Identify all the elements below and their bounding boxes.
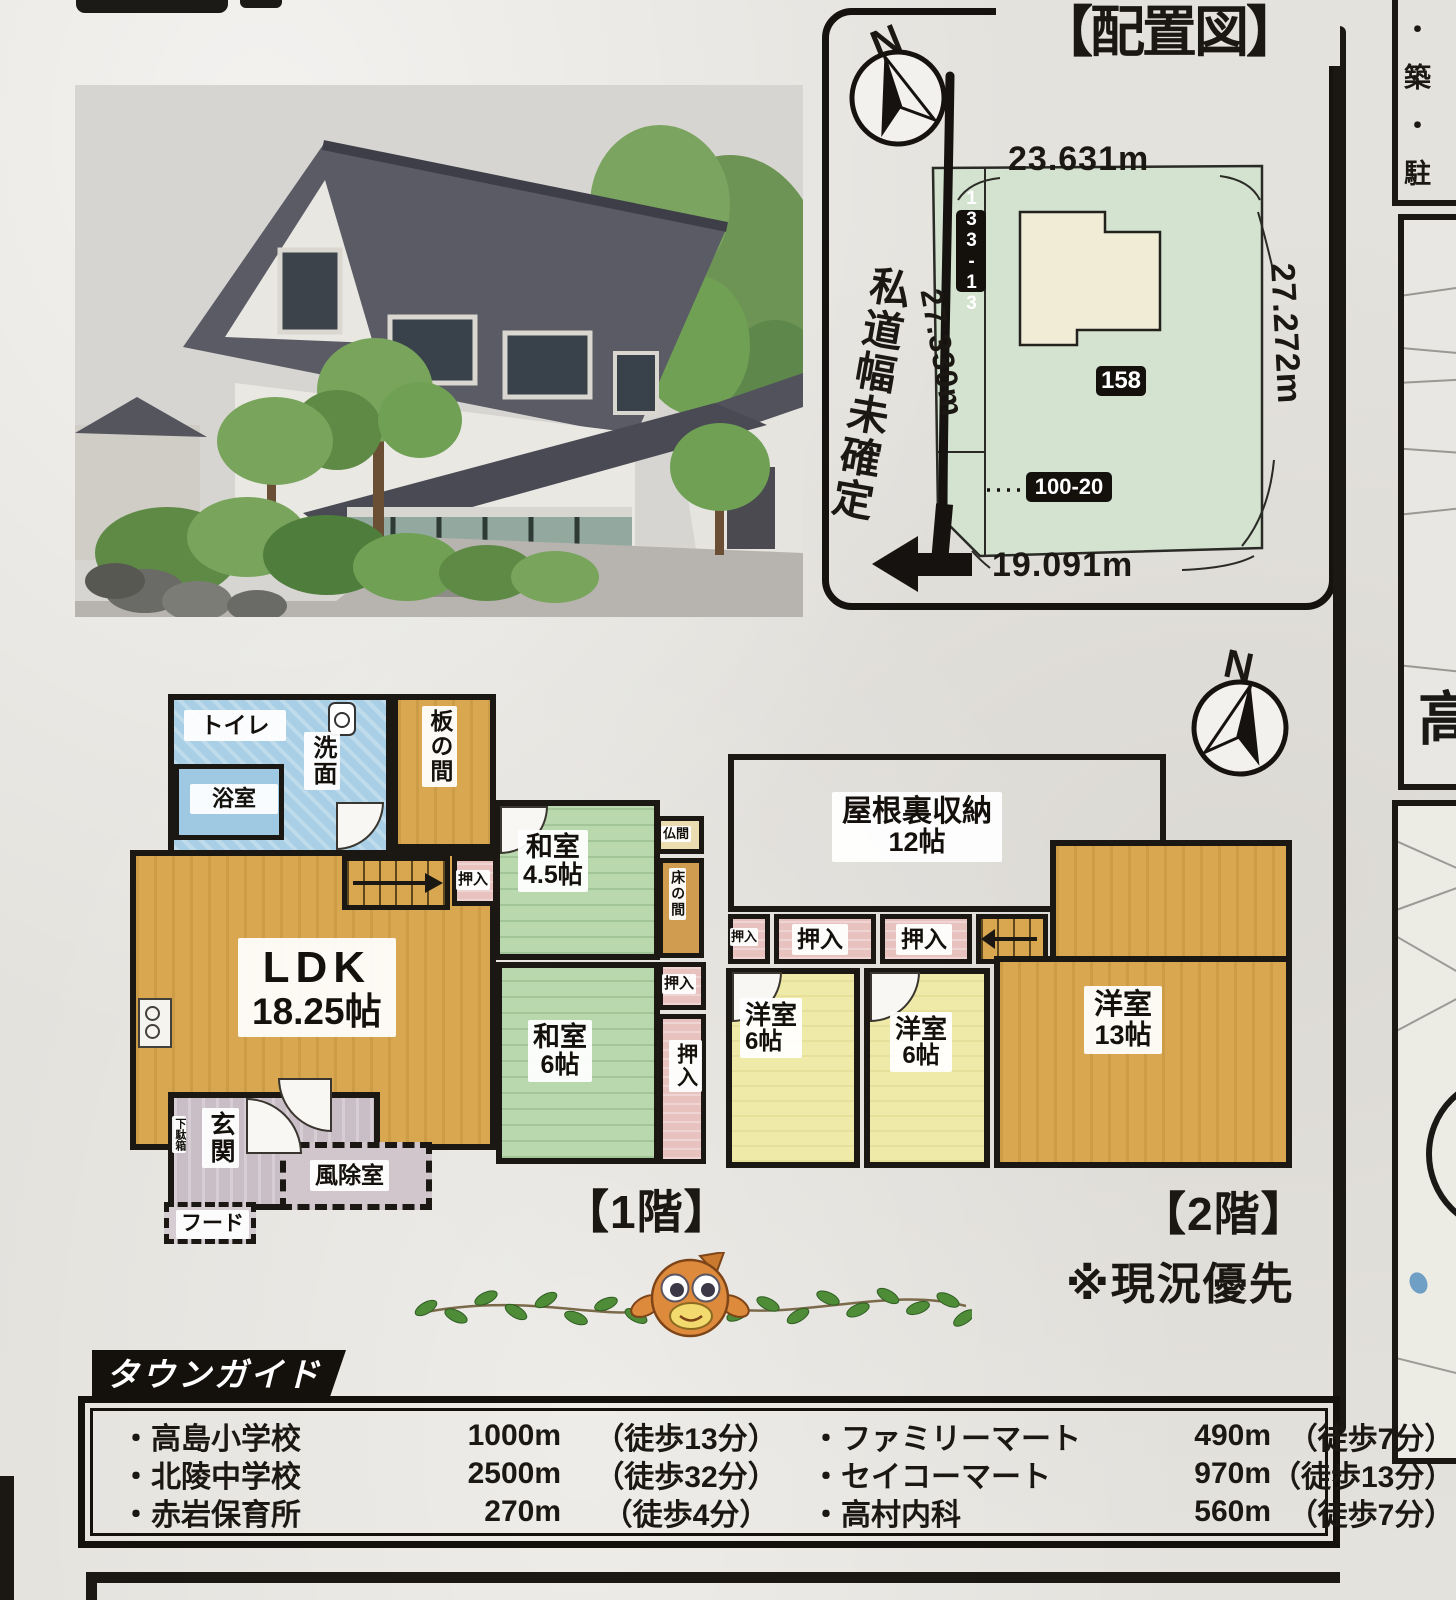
right-map-box-lower — [1392, 800, 1456, 1464]
town-guide-distance: 560m — [1161, 1495, 1271, 1529]
label-oshiire: 押入 — [662, 974, 696, 994]
town-guide-title: タウンガイド — [92, 1350, 346, 1400]
right-map-box-upper: 高 — [1398, 214, 1456, 790]
town-guide-distance: 970m — [1161, 1457, 1271, 1491]
town-guide-tab: タウンガイド — [92, 1350, 346, 1402]
right-list-item: ・築 — [1404, 6, 1456, 102]
dim-bottom: 19.091m — [992, 546, 1133, 585]
label-washitsu45: 和室 4.5帖 — [518, 830, 588, 892]
toilet-bowl-icon — [328, 702, 356, 736]
kitchen-stove-icon — [138, 998, 172, 1048]
room-2f-hall — [1050, 840, 1292, 964]
cut-text-fragment — [240, 0, 282, 8]
label-yoshitsu13: 洋室 13帖 — [1084, 986, 1162, 1054]
fish-mascot-decoration — [408, 1252, 972, 1344]
right-info-box: ・築 ・駐 ・土 行 — [1392, 0, 1456, 206]
label-oshiire: 押入 — [896, 924, 952, 955]
page-edge-band — [0, 1476, 14, 1600]
label-butsuma: 仏間 — [661, 826, 691, 842]
label-tokonoma: 床の間 — [669, 868, 686, 920]
right-list-item: ・駐 — [1404, 102, 1456, 198]
town-guide-box: ・高島小学校 1000m （徒歩13分） ・ファミリーマート 490m （徒歩7… — [78, 1396, 1340, 1548]
parcel-label-158: 158 — [1096, 366, 1146, 396]
building-footprint — [1020, 212, 1160, 345]
label-toilet: トイレ — [184, 710, 286, 741]
fish-mascot-icon — [628, 1252, 753, 1336]
label-washitsu6: 和室 6帖 — [528, 1020, 592, 1082]
next-section-line — [86, 1572, 1340, 1583]
town-guide-walk: （徒歩4分） — [561, 1490, 811, 1534]
town-guide-distance: 490m — [1161, 1419, 1271, 1453]
label-bath: 浴室 — [190, 784, 278, 814]
dim-right: 27.272m — [1262, 262, 1308, 405]
site-plan-title: 【配置図】 — [996, 0, 1340, 66]
as-is-note: ※現況優先 — [1066, 1248, 1295, 1312]
town-guide-name: ・高村内科 — [811, 1490, 1161, 1534]
label-getabako: 下駄箱 — [172, 1116, 186, 1153]
parcel-label-100-20: 100-20 — [1026, 472, 1112, 502]
town-guide-distance: 1000m — [421, 1419, 561, 1453]
house-photo — [75, 85, 803, 617]
map-kanji: 高 — [1418, 672, 1456, 756]
next-section-corner — [86, 1572, 97, 1600]
label-yoshitsu6-b: 洋室 6帖 — [890, 1012, 952, 1072]
label-oshiire: 押入 — [792, 924, 848, 955]
flyer-page: 【配置図】 N 私道幅未確定 23.631m 27.272m 27.330m 1… — [0, 0, 1456, 1600]
label-windbreak: 風除室 — [310, 1160, 389, 1191]
label-oshiire: 押入 — [456, 870, 490, 890]
parcel-label-133-13: 133-13 — [956, 210, 986, 292]
town-guide-walk: （徒歩7分） — [1271, 1490, 1454, 1534]
dim-top: 23.631m — [1008, 140, 1149, 179]
floor2-caption: 【2階】 — [1140, 1178, 1308, 1244]
label-genkan: 玄関 — [202, 1108, 239, 1168]
map-circle-mark — [1426, 1074, 1456, 1234]
label-itanoma: 板の間 — [422, 706, 457, 787]
label-washroom: 洗面 — [304, 732, 340, 790]
label-attic: 屋根裏収納 12帖 — [832, 792, 1002, 862]
floor1-plan: トイレ 浴室 洗面 板の間 押入 和室 4.5帖 仏間 床の間 押入 和室 6帖… — [128, 680, 713, 1242]
label-hood: フード — [176, 1210, 249, 1239]
cut-text-fragment — [76, 0, 228, 13]
stairs-1f — [342, 856, 450, 910]
floor2-plan: 屋根裏収納 12帖 押入 押入 押入 洋室 6帖 洋室 6帖 洋室 13帖 — [712, 730, 1300, 1172]
label-ldk: LDK 18.25帖 — [238, 938, 396, 1037]
floor1-caption: 【1階】 — [563, 1176, 731, 1242]
page-divider-bar — [1333, 26, 1346, 1434]
town-guide-distance: 270m — [421, 1495, 561, 1529]
map-blue-dot — [1406, 1269, 1431, 1296]
label-oshiire-v: 押入 — [669, 1040, 702, 1092]
road-arrow-icon — [872, 536, 972, 592]
label-yoshitsu6-a: 洋室 6帖 — [740, 998, 802, 1058]
label-oshiire: 押入 — [730, 928, 758, 946]
town-guide-distance: 2500m — [421, 1457, 561, 1491]
town-guide-name: ・赤岩保育所 — [121, 1490, 421, 1534]
